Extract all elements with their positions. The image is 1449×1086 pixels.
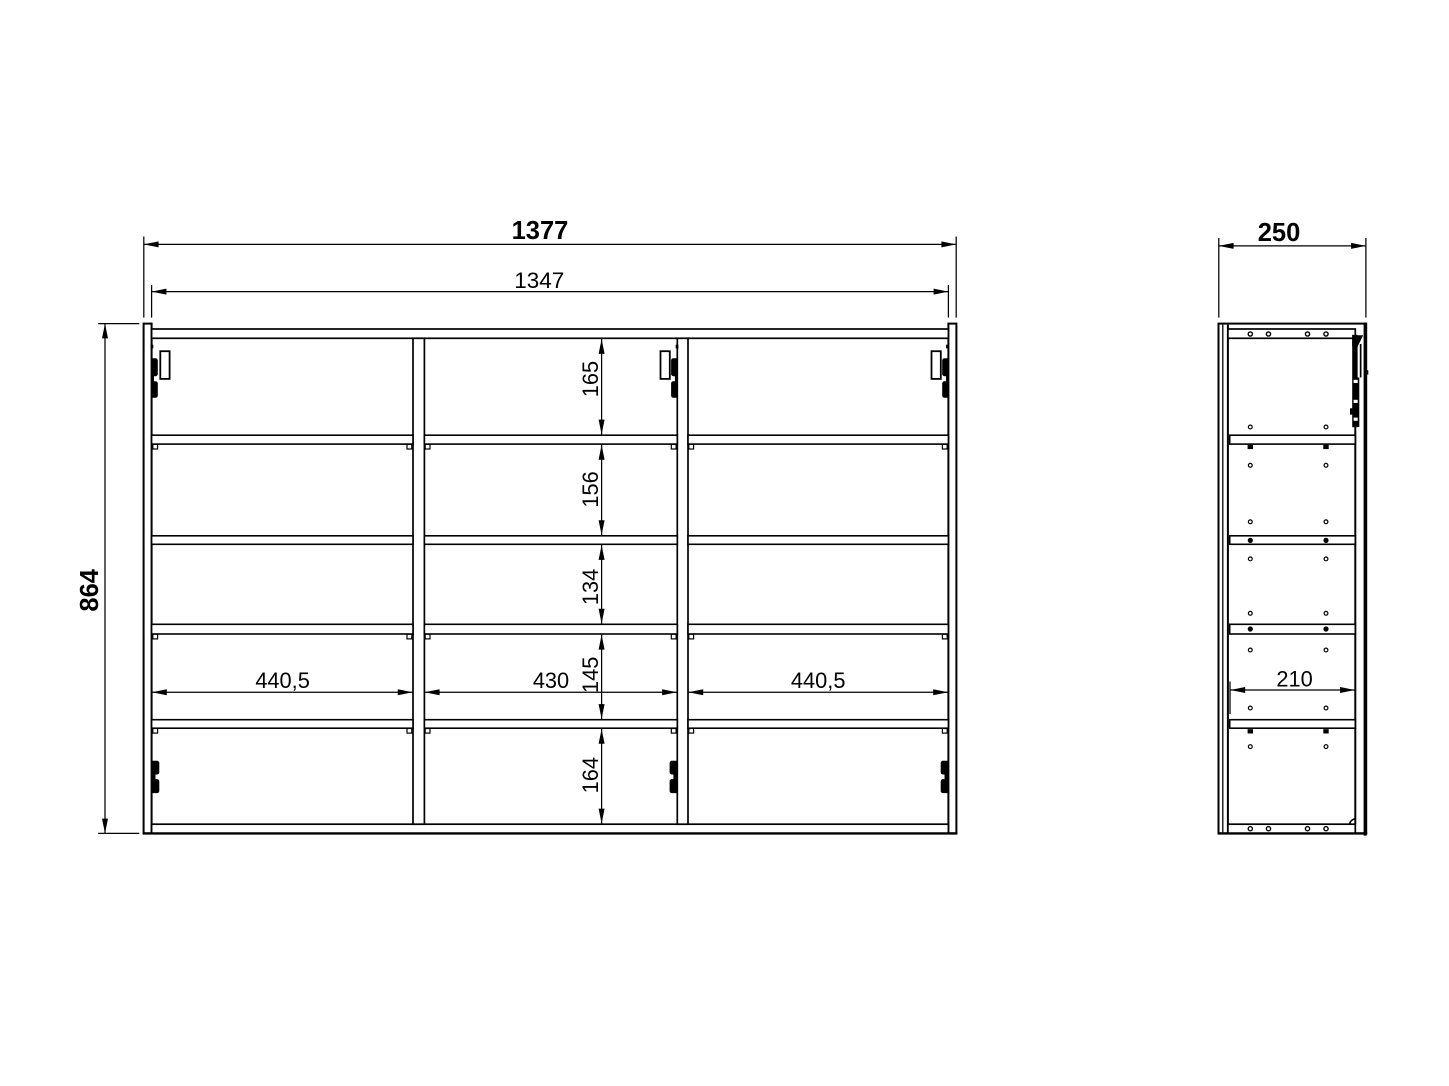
svg-text:210: 210 <box>1276 667 1312 692</box>
svg-text:1377: 1377 <box>512 217 569 245</box>
svg-text:440,5: 440,5 <box>791 668 846 693</box>
svg-text:440,5: 440,5 <box>255 668 310 693</box>
svg-text:156: 156 <box>578 471 603 507</box>
svg-text:430: 430 <box>533 668 569 693</box>
svg-text:145: 145 <box>578 657 603 693</box>
svg-text:134: 134 <box>578 569 603 605</box>
svg-text:165: 165 <box>578 361 603 397</box>
svg-text:1347: 1347 <box>514 268 564 293</box>
svg-text:164: 164 <box>578 757 603 793</box>
svg-text:864: 864 <box>76 568 104 611</box>
svg-text:250: 250 <box>1258 219 1301 247</box>
